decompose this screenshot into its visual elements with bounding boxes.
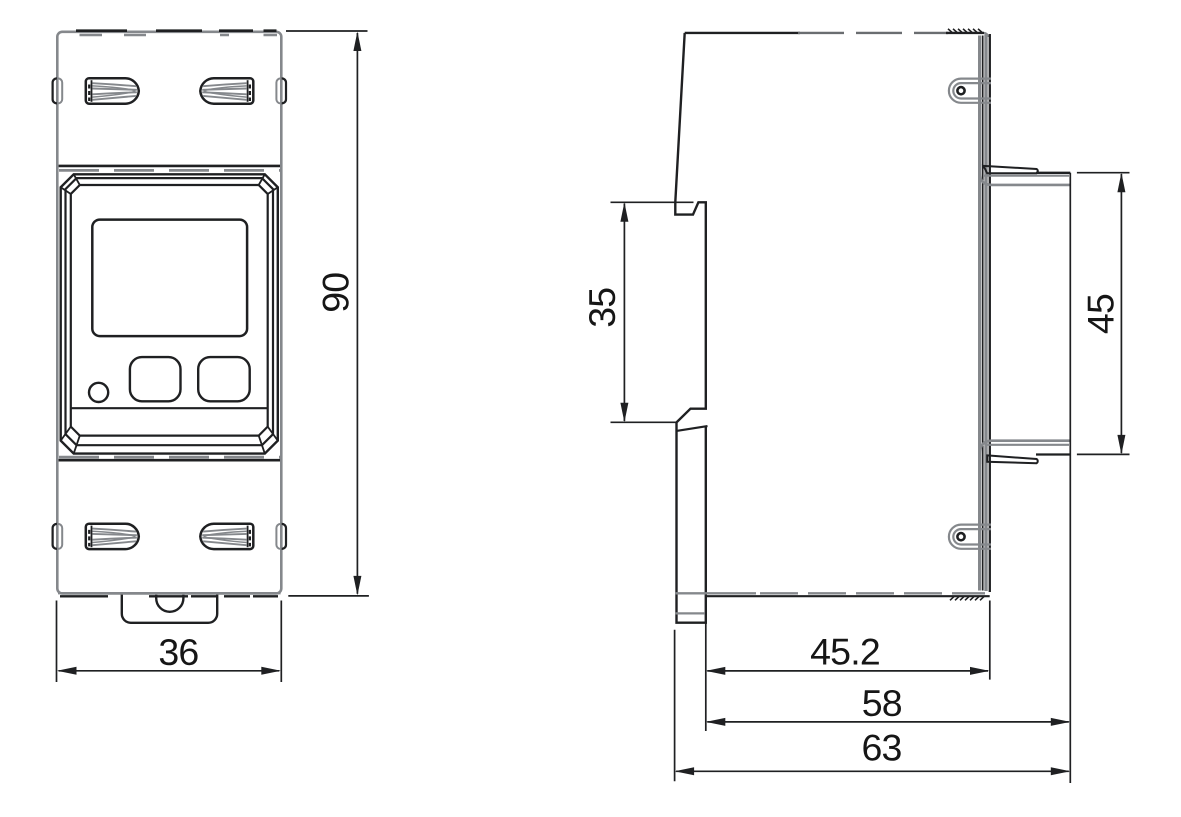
svg-text:45.2: 45.2	[810, 631, 880, 673]
svg-text:90: 90	[315, 273, 357, 313]
svg-text:58: 58	[862, 682, 902, 724]
svg-text:45: 45	[1080, 294, 1122, 334]
svg-text:35: 35	[581, 288, 623, 328]
svg-text:36: 36	[158, 631, 198, 673]
svg-text:63: 63	[861, 727, 901, 769]
